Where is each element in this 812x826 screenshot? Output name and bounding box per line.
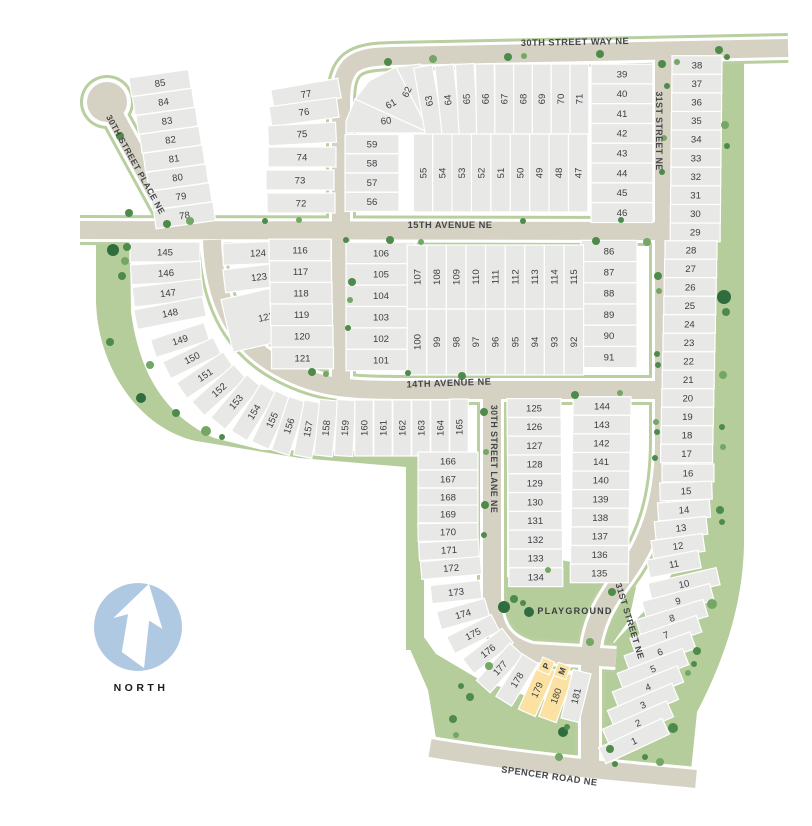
tree-icon [485, 662, 493, 670]
lot-number: 106 [373, 248, 389, 259]
lot-number: 168 [440, 492, 456, 503]
tree-icon [612, 761, 618, 767]
lot: 15 [660, 481, 713, 501]
lot: 173 [430, 580, 482, 604]
lot-number: 158 [320, 420, 333, 437]
lot: 92 [564, 309, 584, 375]
lot: 144 [573, 397, 631, 416]
lot: 53 [452, 134, 472, 212]
lot: 73 [266, 170, 334, 190]
tree-icon [674, 59, 680, 65]
lot: 132 [508, 530, 562, 549]
tree-icon [520, 600, 526, 606]
lot: 105 [346, 264, 416, 285]
lot-number: 130 [527, 497, 543, 508]
tree-icon [498, 601, 510, 613]
tree-icon [691, 661, 697, 667]
lot-number: 45 [617, 188, 628, 199]
tree-icon [658, 60, 666, 68]
lot: 119 [271, 304, 333, 326]
lot: 112 [505, 245, 525, 309]
lot: 134 [509, 568, 563, 587]
lot: 137 [571, 527, 629, 546]
lot-number: 128 [527, 460, 543, 471]
tree-icon [715, 46, 723, 54]
lot-number: 59 [367, 139, 378, 150]
lot-number: 48 [554, 168, 565, 179]
lot-number: 63 [423, 95, 436, 107]
lot-number: 126 [526, 422, 542, 433]
tree-icon [386, 236, 394, 244]
tree-icon [106, 338, 114, 346]
lot-number: 39 [617, 69, 628, 80]
lot-number: 26 [685, 282, 696, 293]
lot-number: 17 [681, 449, 692, 460]
street-label-15th-avenue-ne: 15TH AVENUE NE [408, 220, 493, 230]
lot-number: 74 [297, 152, 308, 163]
tree-icon [481, 532, 487, 538]
lot-number: 71 [575, 94, 586, 105]
lot-number: 52 [477, 168, 488, 179]
lot: 17 [661, 444, 713, 463]
lot-number: 136 [592, 550, 608, 561]
lot: 87 [581, 262, 637, 283]
lot: 88 [581, 283, 637, 304]
lot-number: 167 [440, 474, 456, 485]
lot: 164 [431, 400, 450, 456]
lot-number: 42 [617, 129, 628, 140]
lot-number: 140 [593, 476, 609, 487]
lot: 143 [573, 415, 631, 434]
lot-number: 22 [683, 356, 694, 367]
tree-icon [707, 599, 717, 609]
lot-number: 47 [574, 168, 585, 179]
lot: 50 [510, 134, 530, 212]
lot-number: 116 [292, 245, 307, 256]
lot-number: 107 [412, 269, 423, 285]
lot-number: 146 [158, 268, 175, 280]
lot-number: 57 [367, 178, 378, 189]
tree-icon [617, 390, 623, 396]
lot-number: 161 [378, 420, 389, 436]
tree-icon [656, 758, 664, 766]
lot: 162 [393, 400, 412, 456]
tree-icon [449, 715, 457, 723]
lot-number: 67 [500, 94, 511, 105]
lot-number: 92 [569, 337, 580, 348]
tree-icon [481, 501, 489, 509]
lot-number: 117 [293, 267, 308, 278]
lot-number: 49 [535, 168, 546, 179]
tree-icon [724, 54, 730, 60]
lot-number: 95 [510, 337, 521, 348]
lot-number: 13 [675, 523, 687, 535]
lot-number: 51 [496, 168, 507, 179]
lot: 168 [418, 488, 478, 506]
lot-number: 37 [691, 79, 702, 90]
tree-icon [719, 519, 725, 525]
lot: 26 [664, 278, 716, 297]
lot-number: 141 [593, 457, 609, 468]
lot-number: 43 [617, 149, 628, 160]
tree-icon [643, 238, 651, 246]
lot: 54 [433, 134, 453, 212]
lot: 86 [581, 240, 637, 261]
lot: 90 [581, 325, 637, 346]
lot-number: 29 [690, 228, 701, 239]
lot-number: 110 [471, 269, 482, 284]
tree-icon [571, 391, 579, 399]
tree-icon [118, 272, 126, 280]
lot-number: 139 [592, 494, 608, 505]
tree-icon [685, 670, 691, 676]
lot-number: 41 [617, 109, 628, 120]
tree-icon [721, 121, 729, 129]
lot: 31 [671, 186, 721, 205]
lot-number: 24 [684, 319, 695, 330]
lot: 70 [551, 64, 570, 134]
lot-number: 118 [293, 289, 308, 300]
lot-number: 97 [471, 337, 482, 348]
lot-number: 169 [440, 509, 456, 520]
lot: 20 [662, 389, 714, 408]
lot-number: 113 [530, 269, 541, 284]
lot-number: 101 [373, 355, 389, 366]
lot: 68 [514, 64, 533, 134]
tree-icon [308, 368, 316, 376]
lot: 111 [486, 245, 506, 309]
lot-number: 131 [527, 516, 543, 527]
tree-icon [664, 83, 670, 89]
tree-icon [655, 362, 661, 368]
tree-icon [125, 209, 133, 217]
lot-number: 77 [300, 88, 312, 101]
lot: 161 [374, 400, 393, 456]
tree-icon [418, 239, 424, 245]
lot-number: 38 [692, 60, 703, 71]
lot: 18 [661, 426, 713, 445]
lot-number: 11 [668, 558, 680, 571]
lot-number: 21 [683, 375, 694, 386]
lot: 47 [568, 134, 588, 212]
tree-icon [521, 53, 527, 59]
lot: 16 [662, 464, 714, 482]
tree-icon [186, 217, 194, 225]
lot: 34 [671, 130, 721, 149]
lot-number: 12 [672, 541, 684, 553]
lot-number: 171 [441, 545, 458, 557]
lot-number: 76 [298, 107, 310, 119]
lot: 165 [450, 399, 469, 455]
lot-number: 60 [380, 115, 392, 127]
plat-map-canvas: 8584838281807978777675747372595857566061… [0, 0, 812, 826]
tree-icon [146, 361, 154, 369]
lot: 58 [345, 154, 399, 173]
lot: 99 [427, 309, 447, 375]
lot: 138 [571, 508, 629, 527]
tree-icon [121, 257, 129, 265]
playground-label: PLAYGROUND [537, 606, 612, 616]
lot: 145 [130, 242, 200, 262]
lot-number: 33 [691, 153, 702, 164]
lot-number: 124 [250, 248, 267, 260]
tree-icon [555, 753, 563, 761]
tree-icon [172, 409, 180, 417]
lot: 135 [570, 564, 628, 583]
lot: 101 [346, 349, 416, 370]
lot: 93 [544, 309, 564, 375]
lot: 108 [427, 245, 447, 309]
lot: 45 [591, 183, 653, 203]
street-label-30th-way-ne: 30TH STREET WAY NE [521, 36, 629, 48]
lot: 125 [507, 399, 561, 418]
lot-number: 100 [412, 334, 423, 350]
lot-number: 111 [491, 270, 502, 285]
tree-icon [719, 371, 727, 379]
lot-number: 19 [682, 412, 693, 423]
lot: 59 [345, 135, 399, 154]
lot: 43 [591, 143, 653, 163]
lot-number: 137 [592, 532, 608, 543]
lot: 169 [418, 505, 478, 523]
tree-icon [347, 297, 353, 303]
lot: 32 [671, 167, 721, 186]
tree-icon [608, 588, 616, 596]
tree-icon [123, 243, 131, 251]
lot: 25 [664, 296, 716, 315]
lot-number: 119 [294, 310, 309, 321]
lot-number: 133 [528, 554, 544, 565]
tree-icon [343, 237, 349, 243]
lot-number: 120 [294, 332, 310, 343]
tree-icon [592, 237, 600, 245]
lot: 114 [544, 245, 564, 309]
lot-number: 32 [690, 172, 701, 183]
lot: 37 [672, 74, 722, 93]
tree-icon [136, 393, 146, 403]
lot: 110 [466, 245, 486, 309]
lot: 113 [525, 245, 545, 309]
lot-number: 20 [682, 393, 693, 404]
lot-number: 14 [678, 505, 690, 517]
lot-number: 170 [440, 527, 456, 538]
lot: 72 [267, 193, 335, 213]
tree-icon [654, 429, 660, 435]
lot: 104 [346, 285, 416, 306]
tree-icon [693, 647, 701, 655]
lot: 131 [508, 511, 562, 530]
lot-number: 162 [397, 420, 408, 436]
tree-icon [724, 143, 730, 149]
lot-number: 147 [159, 287, 176, 300]
lot-number: 28 [686, 245, 697, 256]
lot: 52 [471, 134, 491, 212]
lot: 139 [572, 490, 630, 509]
lot: 117 [270, 261, 332, 283]
lot-number: 125 [526, 403, 542, 414]
lot: 44 [591, 163, 653, 183]
lot: 75 [268, 122, 337, 146]
tree-icon [510, 595, 518, 603]
lot-number: 15 [681, 486, 692, 497]
lot: 118 [270, 282, 332, 304]
tree-icon [163, 220, 171, 228]
tree-icon [323, 371, 329, 377]
lot-number: 112 [510, 269, 521, 284]
lot-number: 73 [295, 175, 306, 186]
lot-number: 66 [481, 94, 492, 105]
tree-icon [654, 351, 660, 357]
lot-number: 159 [340, 420, 352, 437]
lot-number: 138 [592, 513, 608, 524]
tree-icon [564, 724, 570, 730]
lot-number: 58 [367, 159, 378, 170]
lot-number: 40 [617, 89, 628, 100]
lot-number: 55 [418, 168, 429, 179]
lot: 129 [508, 474, 562, 493]
lot: 27 [665, 259, 717, 278]
lot-number: 81 [168, 153, 180, 165]
lot: 115 [564, 245, 584, 309]
lot-number: 54 [438, 167, 449, 178]
lot: 95 [505, 309, 525, 375]
lot: 65 [455, 64, 477, 135]
lot: 166 [418, 452, 478, 470]
lot-number: 135 [591, 569, 607, 580]
lot-number: 105 [373, 270, 389, 281]
lot-number: 98 [452, 337, 463, 348]
lot-number: 160 [359, 420, 370, 436]
lot-number: 165 [454, 419, 465, 435]
lot-number: 86 [604, 246, 615, 257]
lot: 56 [345, 192, 399, 211]
lot-number: 163 [416, 420, 427, 436]
lot-number: 18 [682, 430, 693, 441]
lot: 91 [581, 346, 637, 367]
lot-number: 87 [604, 268, 615, 279]
street-label-30th-street-lane-ne: 30TH STREET LANE NE [489, 405, 499, 513]
lot-number: 85 [154, 78, 166, 90]
tree-icon [656, 288, 662, 294]
lot-number: 31 [690, 191, 701, 202]
lot-number: 108 [432, 269, 443, 285]
lot: 39 [591, 64, 653, 84]
lot-number: 104 [373, 291, 390, 302]
lot: 106 [346, 242, 416, 263]
lot: 127 [507, 436, 561, 455]
lot: 30 [670, 205, 720, 224]
tree-icon [606, 745, 614, 753]
lot: 33 [671, 149, 721, 168]
tree-icon [384, 58, 392, 66]
tree-icon [345, 325, 351, 331]
lot: 94 [525, 309, 545, 375]
lot-number: 172 [443, 563, 460, 575]
lot-number: 93 [550, 337, 561, 348]
lot: 21 [662, 370, 714, 389]
tree-icon [219, 434, 225, 440]
lot: 116 [269, 239, 331, 261]
lot-number: 36 [691, 98, 702, 109]
lot: 40 [591, 84, 653, 104]
lot-number: 80 [172, 172, 184, 184]
lot: 22 [663, 352, 715, 371]
lot-number: 25 [684, 301, 695, 312]
lot: 49 [530, 134, 550, 212]
lot: 126 [507, 417, 561, 436]
lot: 140 [572, 471, 630, 490]
plat-map: 8584838281807978777675747372595857566061… [0, 0, 812, 826]
tree-icon [504, 53, 512, 61]
lot-number: 143 [594, 420, 610, 431]
lot: 66 [475, 64, 495, 134]
lot-number: 50 [515, 168, 526, 179]
lot: 57 [345, 173, 399, 192]
lot: 103 [346, 307, 416, 328]
lot: 107 [407, 245, 427, 309]
lot-number: 102 [373, 334, 389, 345]
lot-number: 114 [550, 269, 561, 285]
lot-number: 72 [296, 198, 307, 209]
lot: 128 [508, 455, 562, 474]
tree-icon [296, 217, 302, 223]
lot-number: 68 [518, 94, 529, 105]
lot: 38 [672, 56, 722, 75]
lot: 163 [412, 400, 431, 456]
lot: 133 [509, 549, 563, 568]
lot-number: 94 [530, 336, 541, 347]
lot: 121 [272, 347, 334, 369]
tree-icon [654, 272, 662, 280]
lot: 142 [572, 434, 630, 453]
lot: 48 [549, 134, 569, 212]
lot-number: 65 [462, 93, 474, 104]
lot: 41 [591, 104, 653, 124]
lot-number: 70 [556, 94, 567, 105]
lot-number: 23 [684, 338, 695, 349]
lot-number: 173 [448, 586, 465, 599]
lot: 51 [491, 134, 511, 212]
lot-number: 144 [594, 401, 611, 412]
lot: 130 [508, 493, 562, 512]
tree-icon [483, 449, 489, 455]
lot-number: 90 [604, 331, 615, 342]
lot-number: 44 [617, 168, 628, 179]
tree-icon [722, 308, 730, 316]
tree-icon [201, 426, 211, 436]
lot-number: 145 [157, 247, 173, 258]
lot: 23 [663, 333, 715, 352]
lot: 98 [446, 309, 466, 375]
lot-number: 123 [250, 271, 267, 284]
lot: 160 [355, 400, 374, 456]
lot: 97 [466, 309, 486, 375]
lot-number: 53 [457, 168, 468, 179]
lot: 42 [591, 123, 653, 143]
tree-icon [458, 683, 464, 689]
lot: 28 [665, 241, 717, 260]
lot-number: 69 [537, 94, 548, 105]
tree-icon [618, 217, 624, 223]
lot-number: 34 [691, 135, 702, 146]
lot: 55 [413, 134, 433, 212]
lot: 74 [268, 147, 336, 167]
lot-number: 64 [442, 93, 454, 105]
lot-number: 89 [604, 310, 615, 321]
tree-icon [653, 419, 659, 425]
lot-number: 82 [165, 134, 177, 146]
tree-icon [545, 567, 551, 573]
